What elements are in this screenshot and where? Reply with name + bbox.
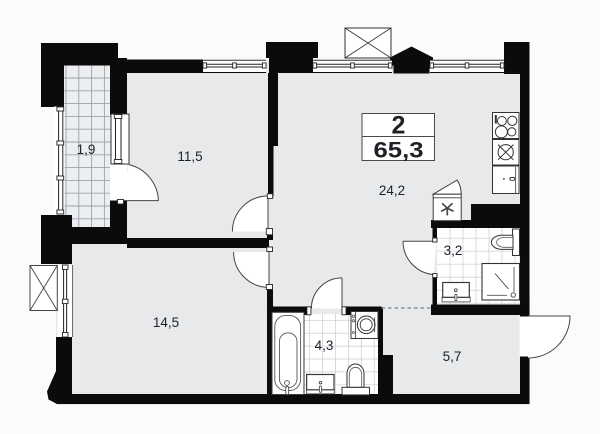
- svg-text:14,5: 14,5: [153, 315, 179, 330]
- svg-text:65,3: 65,3: [374, 138, 424, 163]
- svg-text:1,9: 1,9: [77, 142, 96, 157]
- svg-text:4,3: 4,3: [315, 338, 334, 353]
- svg-text:24,2: 24,2: [379, 183, 405, 198]
- svg-text:2: 2: [392, 112, 406, 140]
- svg-text:11,5: 11,5: [177, 149, 202, 164]
- svg-text:3,2: 3,2: [444, 243, 463, 258]
- svg-text:5,7: 5,7: [443, 349, 462, 364]
